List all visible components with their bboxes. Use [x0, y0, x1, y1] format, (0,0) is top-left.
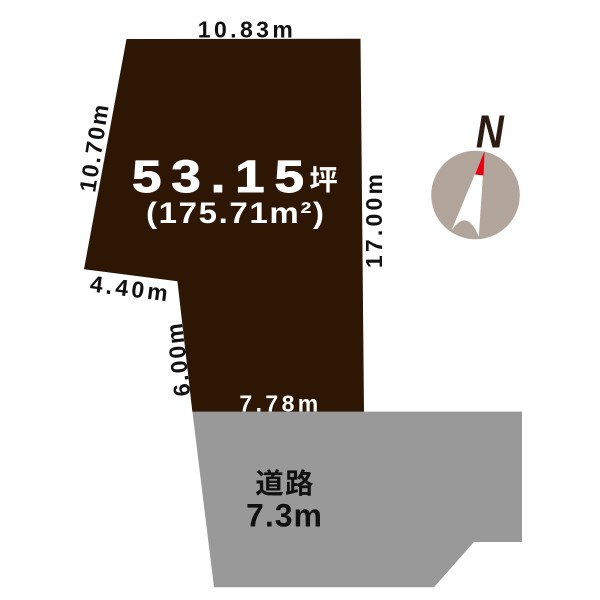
svg-text:10.83m: 10.83m [198, 17, 296, 43]
svg-text:(175.71m²): (175.71m²) [146, 195, 326, 229]
svg-text:7.3m: 7.3m [246, 498, 323, 534]
svg-text:7.78m: 7.78m [239, 391, 321, 417]
svg-text:17.00m: 17.00m [361, 171, 387, 268]
svg-text:N: N [476, 106, 505, 158]
